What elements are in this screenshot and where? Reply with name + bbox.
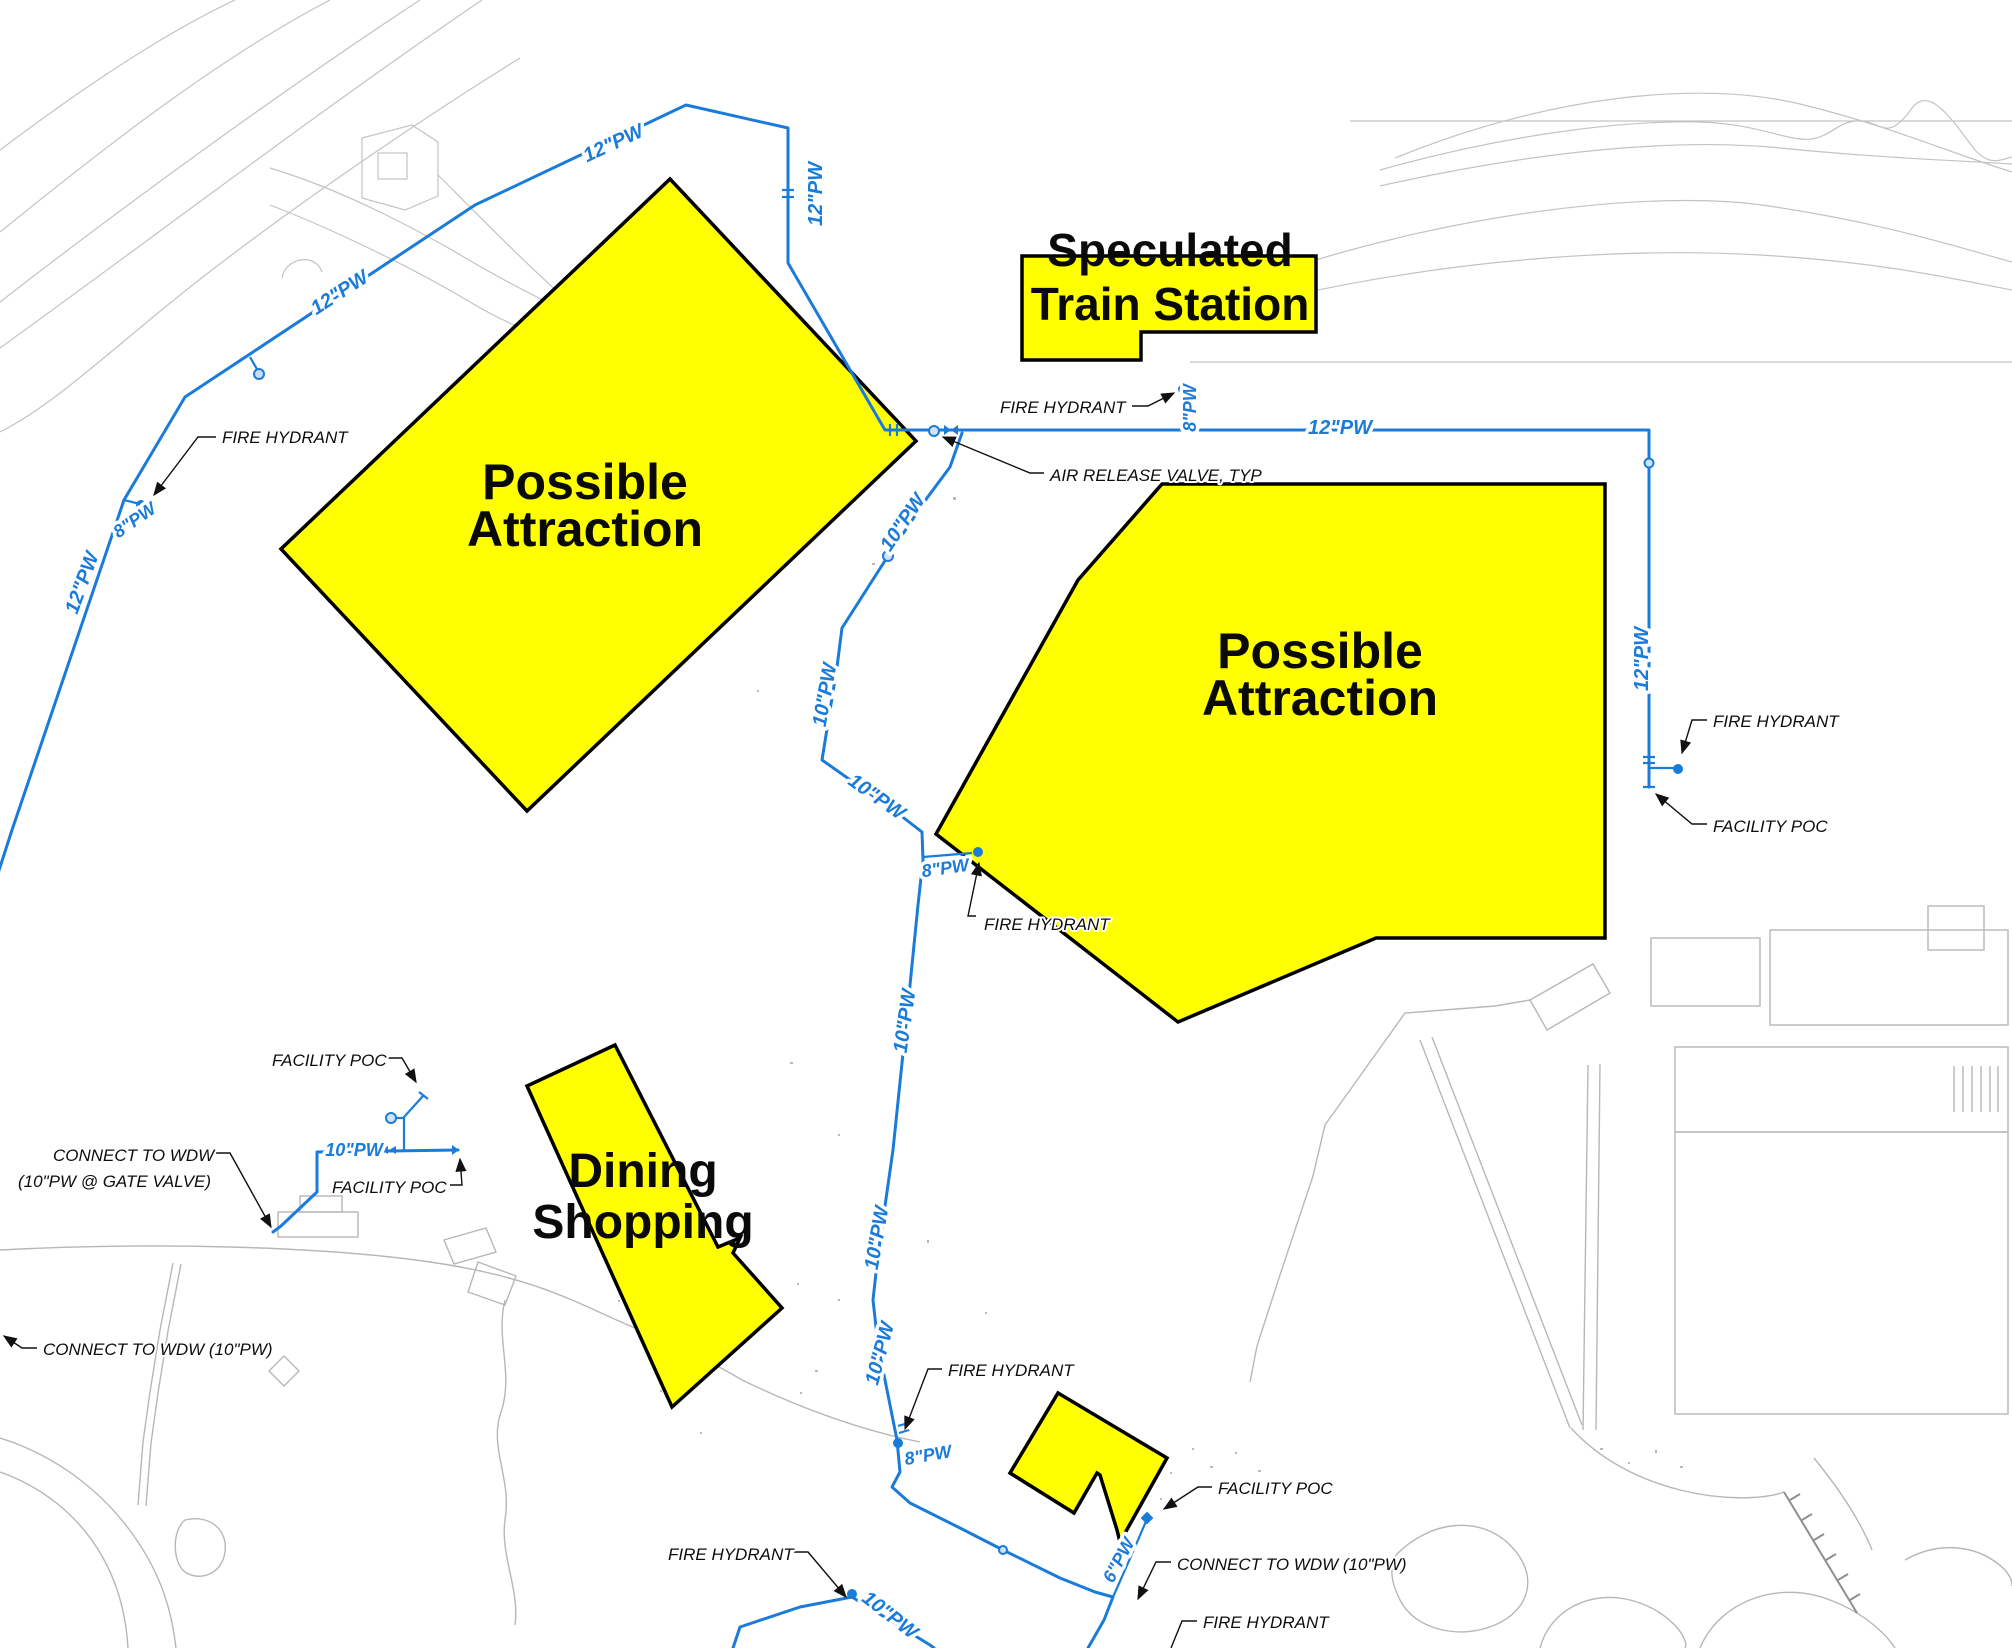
note-connect-wdw-se: CONNECT TO WDW (10"PW) <box>1177 1555 1407 1574</box>
pipe-label-10pw: 10"PW <box>325 1140 385 1160</box>
facility-poc-symbol <box>1141 1512 1152 1523</box>
note-fire-hydrant-lowmid: FIRE HYDRANT <box>948 1361 1075 1380</box>
title-attraction-nw-line2: Attraction <box>467 501 703 557</box>
site-utility-plan: 12"PW 12"PW 12"PW 12"PW 12"PW 12"PW 10"P… <box>0 0 2012 1648</box>
note-fire-hydrant-sw: FIRE HYDRANT <box>668 1545 795 1564</box>
air-release-valve-symbol <box>929 426 939 436</box>
pipe-label-12pw: 12"PW <box>1308 417 1374 439</box>
site-plan-canvas: 12"PW 12"PW 12"PW 12"PW 12"PW 12"PW 10"P… <box>0 0 2012 1648</box>
hydrant-symbol <box>254 369 264 379</box>
pipe-label-10pw: 10"PW <box>809 659 842 728</box>
gate-valve-symbol <box>386 1113 396 1123</box>
note-connect-wdw-line2: (10"PW @ GATE VALVE) <box>18 1172 211 1191</box>
valve-symbol <box>999 1546 1007 1554</box>
note-facility-poc-nw1: FACILITY POC <box>272 1051 387 1070</box>
note-fire-hydrant-nw: FIRE HYDRANT <box>222 428 349 447</box>
note-fire-hydrant-mid: FIRE HYDRANT <box>984 915 1111 934</box>
title-train-station-line2: Train Station <box>1031 278 1310 330</box>
pipe-label-10pw: 10"PW <box>876 488 931 555</box>
pipe-label-12pw: 12"PW <box>307 265 374 319</box>
note-facility-poc-right: FACILITY POC <box>1713 817 1828 836</box>
pipe-label-10pw: 10"PW <box>890 986 921 1054</box>
pipe-label-8pw: 8"PW <box>920 855 972 882</box>
spur-facility-poc <box>404 1096 423 1150</box>
note-facility-poc-se: FACILITY POC <box>1218 1479 1333 1498</box>
note-fire-hydrant-se: FIRE HYDRANT <box>1203 1613 1330 1632</box>
pipe-label-12pw: 12"PW <box>61 547 104 617</box>
title-dining-line1: Dining <box>568 1145 717 1198</box>
note-connect-wdw-line1: CONNECT TO WDW <box>53 1146 216 1165</box>
note-air-release-valve: AIR RELEASE VALVE, TYP <box>1049 466 1262 485</box>
pipe-label-10pw: 10"PW <box>858 1587 924 1645</box>
title-train-station-line1: Speculated <box>1047 224 1292 276</box>
note-facility-poc-nw2: FACILITY POC <box>332 1178 447 1197</box>
note-fire-hydrant-top: FIRE HYDRANT <box>1000 398 1127 417</box>
note-connect-wdw-sw: CONNECT TO WDW (10"PW) <box>43 1340 273 1359</box>
note-fire-hydrant-right: FIRE HYDRANT <box>1713 712 1840 731</box>
pipe-label-10pw: 10"PW <box>861 1202 894 1271</box>
pipe-label-8pw: 8"PW <box>903 1441 955 1469</box>
pipe-label-10pw: 10"PW <box>844 770 911 826</box>
pipe-label-10pw: 10"PW <box>861 1318 899 1388</box>
pipe-label-8pw: 8"PW <box>1180 382 1200 432</box>
pipe-label-12pw: 12"PW <box>805 160 827 226</box>
hydrant-symbol <box>1674 765 1683 774</box>
hydrant-symbol <box>974 848 983 857</box>
pipe-label-12pw: 12"PW <box>580 119 649 167</box>
hydrant-symbol <box>894 1439 903 1448</box>
area-attraction-e <box>936 484 1605 1022</box>
pipe-label-12pw: 12"PW <box>1631 625 1653 691</box>
title-dining-line2: Shopping <box>532 1196 753 1249</box>
hydrant-symbol <box>848 1590 857 1599</box>
valve-symbol <box>1645 459 1654 468</box>
title-attraction-e-line2: Attraction <box>1202 670 1438 726</box>
pipe-label-6pw: 6"PW <box>1099 1533 1140 1586</box>
